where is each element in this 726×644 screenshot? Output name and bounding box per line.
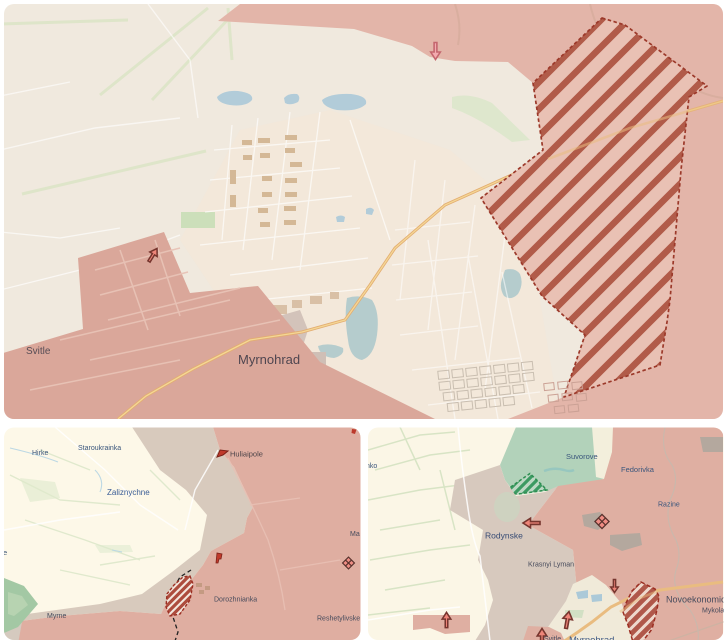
svg-text:Rodynske: Rodynske bbox=[485, 531, 523, 541]
svg-text:Svitle: Svitle bbox=[544, 636, 561, 643]
svg-text:Razine: Razine bbox=[658, 502, 680, 509]
svg-text:Zaliznychne: Zaliznychne bbox=[107, 488, 150, 497]
svg-text:Svitle: Svitle bbox=[26, 346, 51, 357]
svg-text:e: e bbox=[3, 548, 7, 557]
svg-text:Myrnohrad: Myrnohrad bbox=[238, 352, 300, 367]
svg-text:Novoekonomich: Novoekonomich bbox=[666, 595, 726, 605]
svg-text:Myrne: Myrne bbox=[47, 613, 67, 620]
svg-text:Reshetylivske: Reshetylivske bbox=[317, 616, 360, 623]
svg-text:Myrnohrad: Myrnohrad bbox=[569, 635, 614, 644]
svg-text:Krasnyi Lyman: Krasnyi Lyman bbox=[528, 562, 574, 569]
svg-text:Huliaipole: Huliaipole bbox=[230, 450, 263, 459]
svg-text:Staroukrainka: Staroukrainka bbox=[78, 445, 121, 452]
svg-text:Ma: Ma bbox=[350, 531, 360, 538]
svg-text:Fedorivka: Fedorivka bbox=[621, 465, 655, 474]
svg-text:Suvorove: Suvorove bbox=[566, 452, 598, 461]
svg-text:Mykola: Mykola bbox=[702, 608, 724, 615]
svg-text:Hirke: Hirke bbox=[32, 450, 48, 457]
svg-text:Dorozhnianka: Dorozhnianka bbox=[214, 597, 257, 604]
svg-text:nko: nko bbox=[366, 463, 377, 470]
